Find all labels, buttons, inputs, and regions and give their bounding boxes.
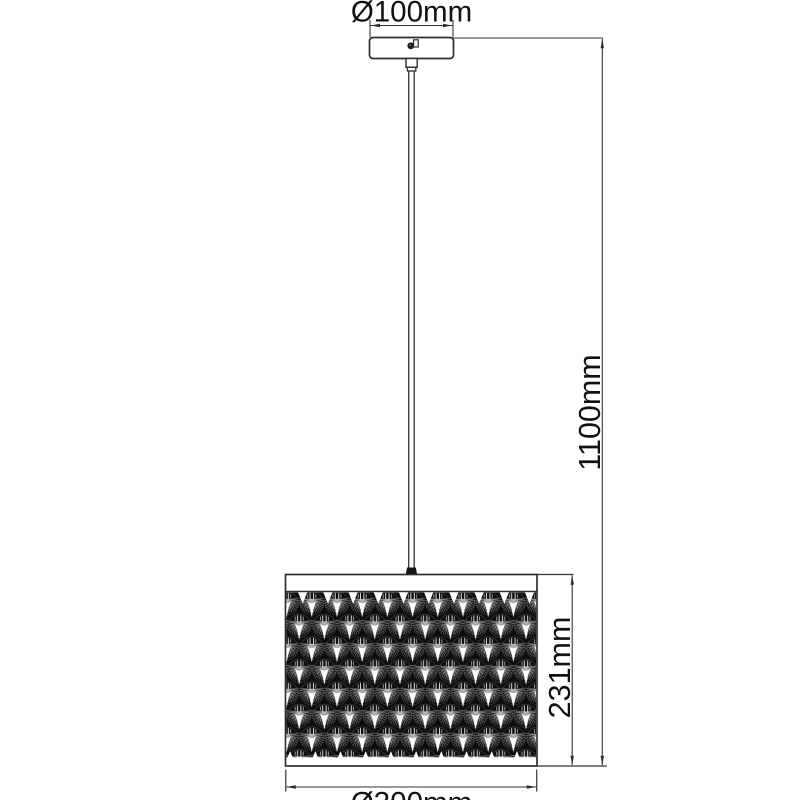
svg-text:231mm: 231mm	[543, 617, 577, 719]
svg-text:Ø100mm: Ø100mm	[351, 0, 472, 29]
svg-text:Ø300mm: Ø300mm	[351, 786, 472, 800]
svg-text:1100mm: 1100mm	[573, 354, 607, 470]
